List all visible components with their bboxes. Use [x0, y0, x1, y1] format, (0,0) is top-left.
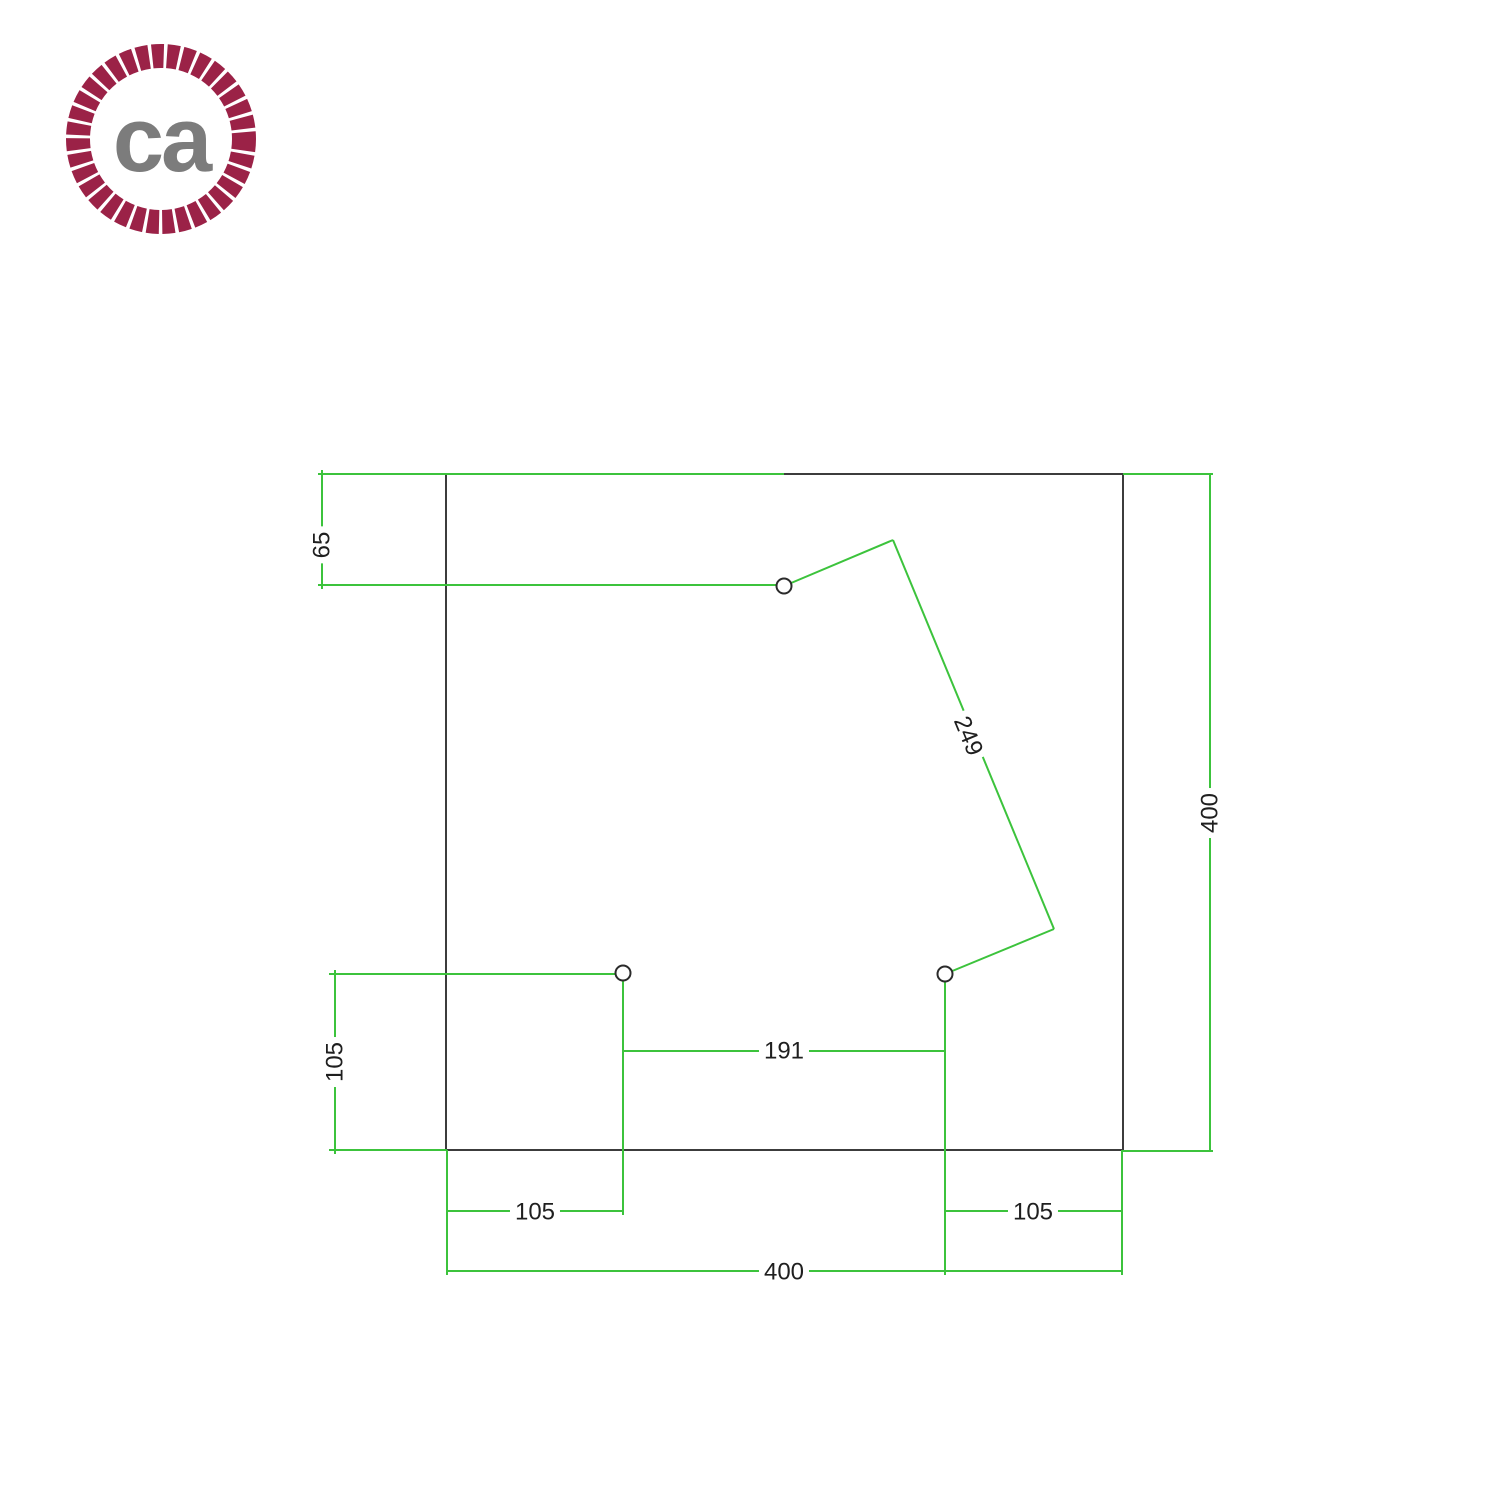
dimension-line [945, 929, 1054, 974]
dimension-drawing-svg [0, 0, 1500, 1500]
hole-top [777, 579, 792, 594]
hole-bottom-left [616, 966, 631, 981]
dimension-label: 191 [759, 1038, 809, 1063]
dimension-line [784, 540, 893, 586]
dimension-label: 105 [322, 1037, 347, 1087]
hole-bottom-right [938, 967, 953, 982]
diagram-page: ca 65105105191105400400249 [0, 0, 1500, 1500]
dimension-label: 65 [309, 527, 334, 564]
dimension-label: 400 [759, 1259, 809, 1284]
dimension-label: 105 [1008, 1199, 1058, 1224]
dimension-label: 400 [1197, 788, 1222, 838]
dimension-label: 105 [510, 1199, 560, 1224]
